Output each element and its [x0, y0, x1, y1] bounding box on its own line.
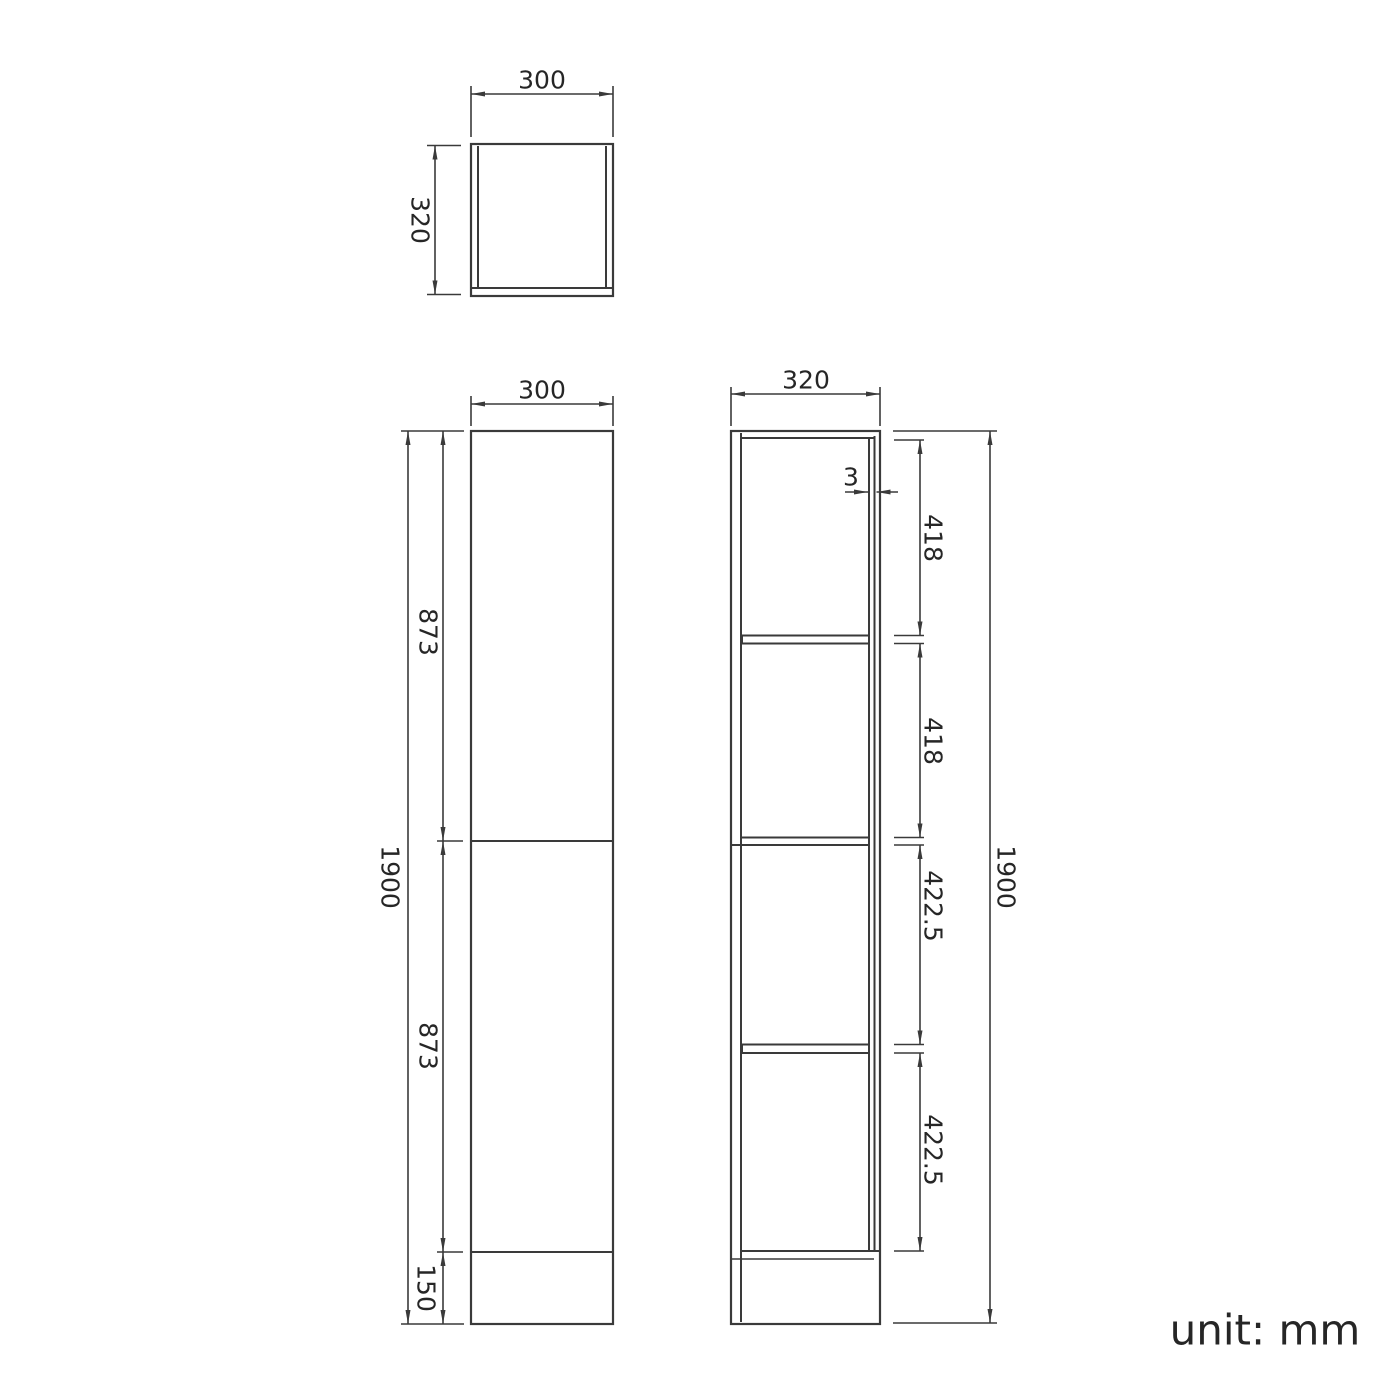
side-view-shelf-3	[742, 1045, 869, 1054]
front-total-height-label: 1900	[376, 845, 405, 909]
front-width-label: 300	[518, 376, 566, 405]
front-view-dimensions: 300 1900 873 873 150	[376, 376, 614, 1325]
door-gap-label: 3	[843, 463, 859, 492]
side-view-shelf-1	[742, 636, 869, 644]
side-compartment1-label: 418	[919, 514, 948, 562]
side-view	[731, 431, 880, 1324]
front-upper-door-label: 873	[414, 608, 443, 656]
side-compartment3-label: 422.5	[919, 870, 948, 942]
front-lower-door-label: 873	[414, 1022, 443, 1070]
top-width-label: 300	[518, 66, 566, 95]
side-compartment4-label: 422.5	[919, 1114, 948, 1186]
side-view-outline	[731, 431, 880, 1324]
side-total-height-label: 1900	[992, 845, 1021, 909]
side-depth-label: 320	[782, 366, 830, 395]
front-view-outline	[471, 431, 613, 1324]
top-depth-label: 320	[406, 196, 435, 244]
unit-note: unit: mm	[1170, 1306, 1361, 1355]
top-view-outline	[471, 144, 613, 296]
top-view	[471, 144, 613, 296]
cabinet-dimension-drawing: 300 320 300 1900 873 873 150	[0, 0, 1400, 1400]
technical-drawing-canvas: 300 320 300 1900 873 873 150	[0, 0, 1400, 1400]
front-view	[471, 431, 613, 1324]
side-compartment2-label: 418	[919, 717, 948, 765]
top-view-dimensions: 300 320	[406, 66, 614, 295]
front-plinth-label: 150	[412, 1264, 441, 1312]
